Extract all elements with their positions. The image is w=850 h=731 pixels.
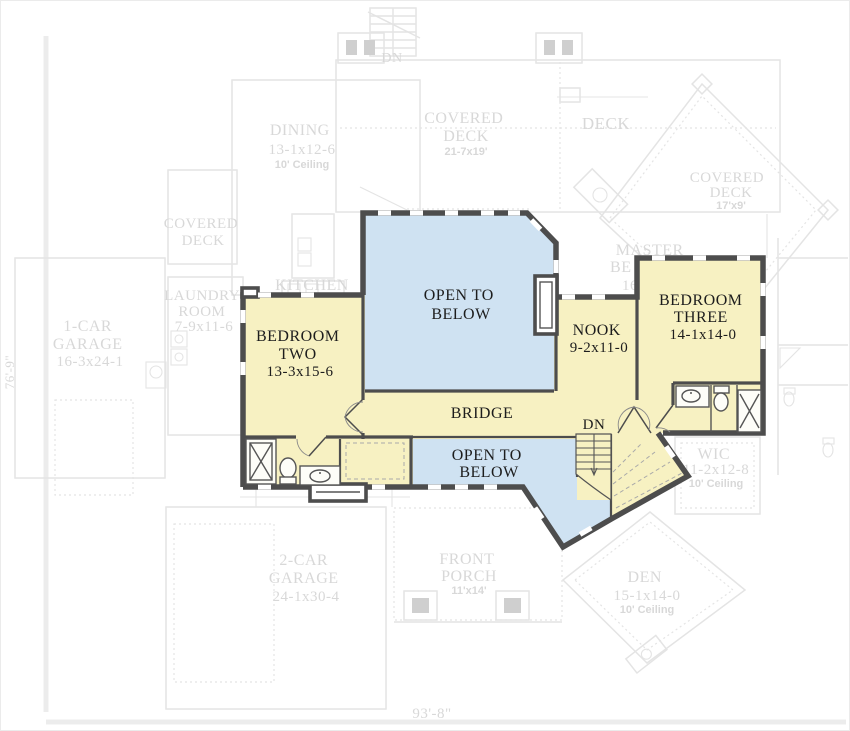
floor-plan-svg: DN DINING 13-1x12-6 10' Ceiling COVERED … <box>0 0 850 731</box>
room-label-dining-ceiling: 10' Ceiling <box>275 159 330 171</box>
corner-window-box <box>242 288 258 297</box>
label-open-to-below-lower: OPEN TO BELOW <box>452 447 527 481</box>
room-label-garage-1: 1-CAR GARAGE 16-3x24-1 <box>53 318 127 370</box>
vanity-right <box>676 386 709 407</box>
label-bridge: BRIDGE <box>451 405 514 422</box>
room-label-front-porch: FRONT PORCH <box>439 551 498 585</box>
room-label-laundry: LAUNDRY ROOM 7-9x11-6 <box>164 288 244 335</box>
room-label-garage-2: 2-CAR GARAGE 24-1x30-4 <box>269 552 343 605</box>
room-label-covered-deck-right-size: 17'x9' <box>716 200 746 212</box>
room-label-dining: DINING 13-1x12-6 <box>269 122 336 158</box>
label-dn: DN <box>583 417 606 433</box>
room-label-wic: WIC 11-2x12-8 <box>683 446 749 478</box>
room-label-covered-deck-right: COVERED DECK <box>690 170 769 201</box>
room-label-front-porch-size: 11'x14' <box>451 585 487 597</box>
room-label-deck: DECK <box>582 114 631 133</box>
ghost-master-bath <box>778 238 848 475</box>
room-label-den: DEN 15-1x14-0 <box>614 569 681 604</box>
ghost-top-stairs <box>368 8 420 56</box>
bottom-dimension-text: 93'-8" <box>412 706 451 722</box>
ghost-garage-1 <box>15 258 166 495</box>
floor-plan-page: DN DINING 13-1x12-6 10' Ceiling COVERED … <box>0 0 850 731</box>
left-dimension-text: 76'-9" <box>2 355 17 389</box>
window-seat-box <box>535 276 557 334</box>
room-label-wic-ceiling: 10' Ceiling <box>689 478 744 490</box>
room-label-covered-deck-left: COVERED DECK <box>164 216 243 249</box>
room-label-kitchen: KITCHEN <box>275 277 349 294</box>
room-label-den-ceiling: 10' Ceiling <box>620 604 675 616</box>
room-label-covered-deck-top-size: 21-7x19' <box>445 146 488 158</box>
toilet-left <box>280 458 296 478</box>
toilet-right <box>714 386 729 393</box>
ghost-label-dn: DN <box>381 51 402 66</box>
